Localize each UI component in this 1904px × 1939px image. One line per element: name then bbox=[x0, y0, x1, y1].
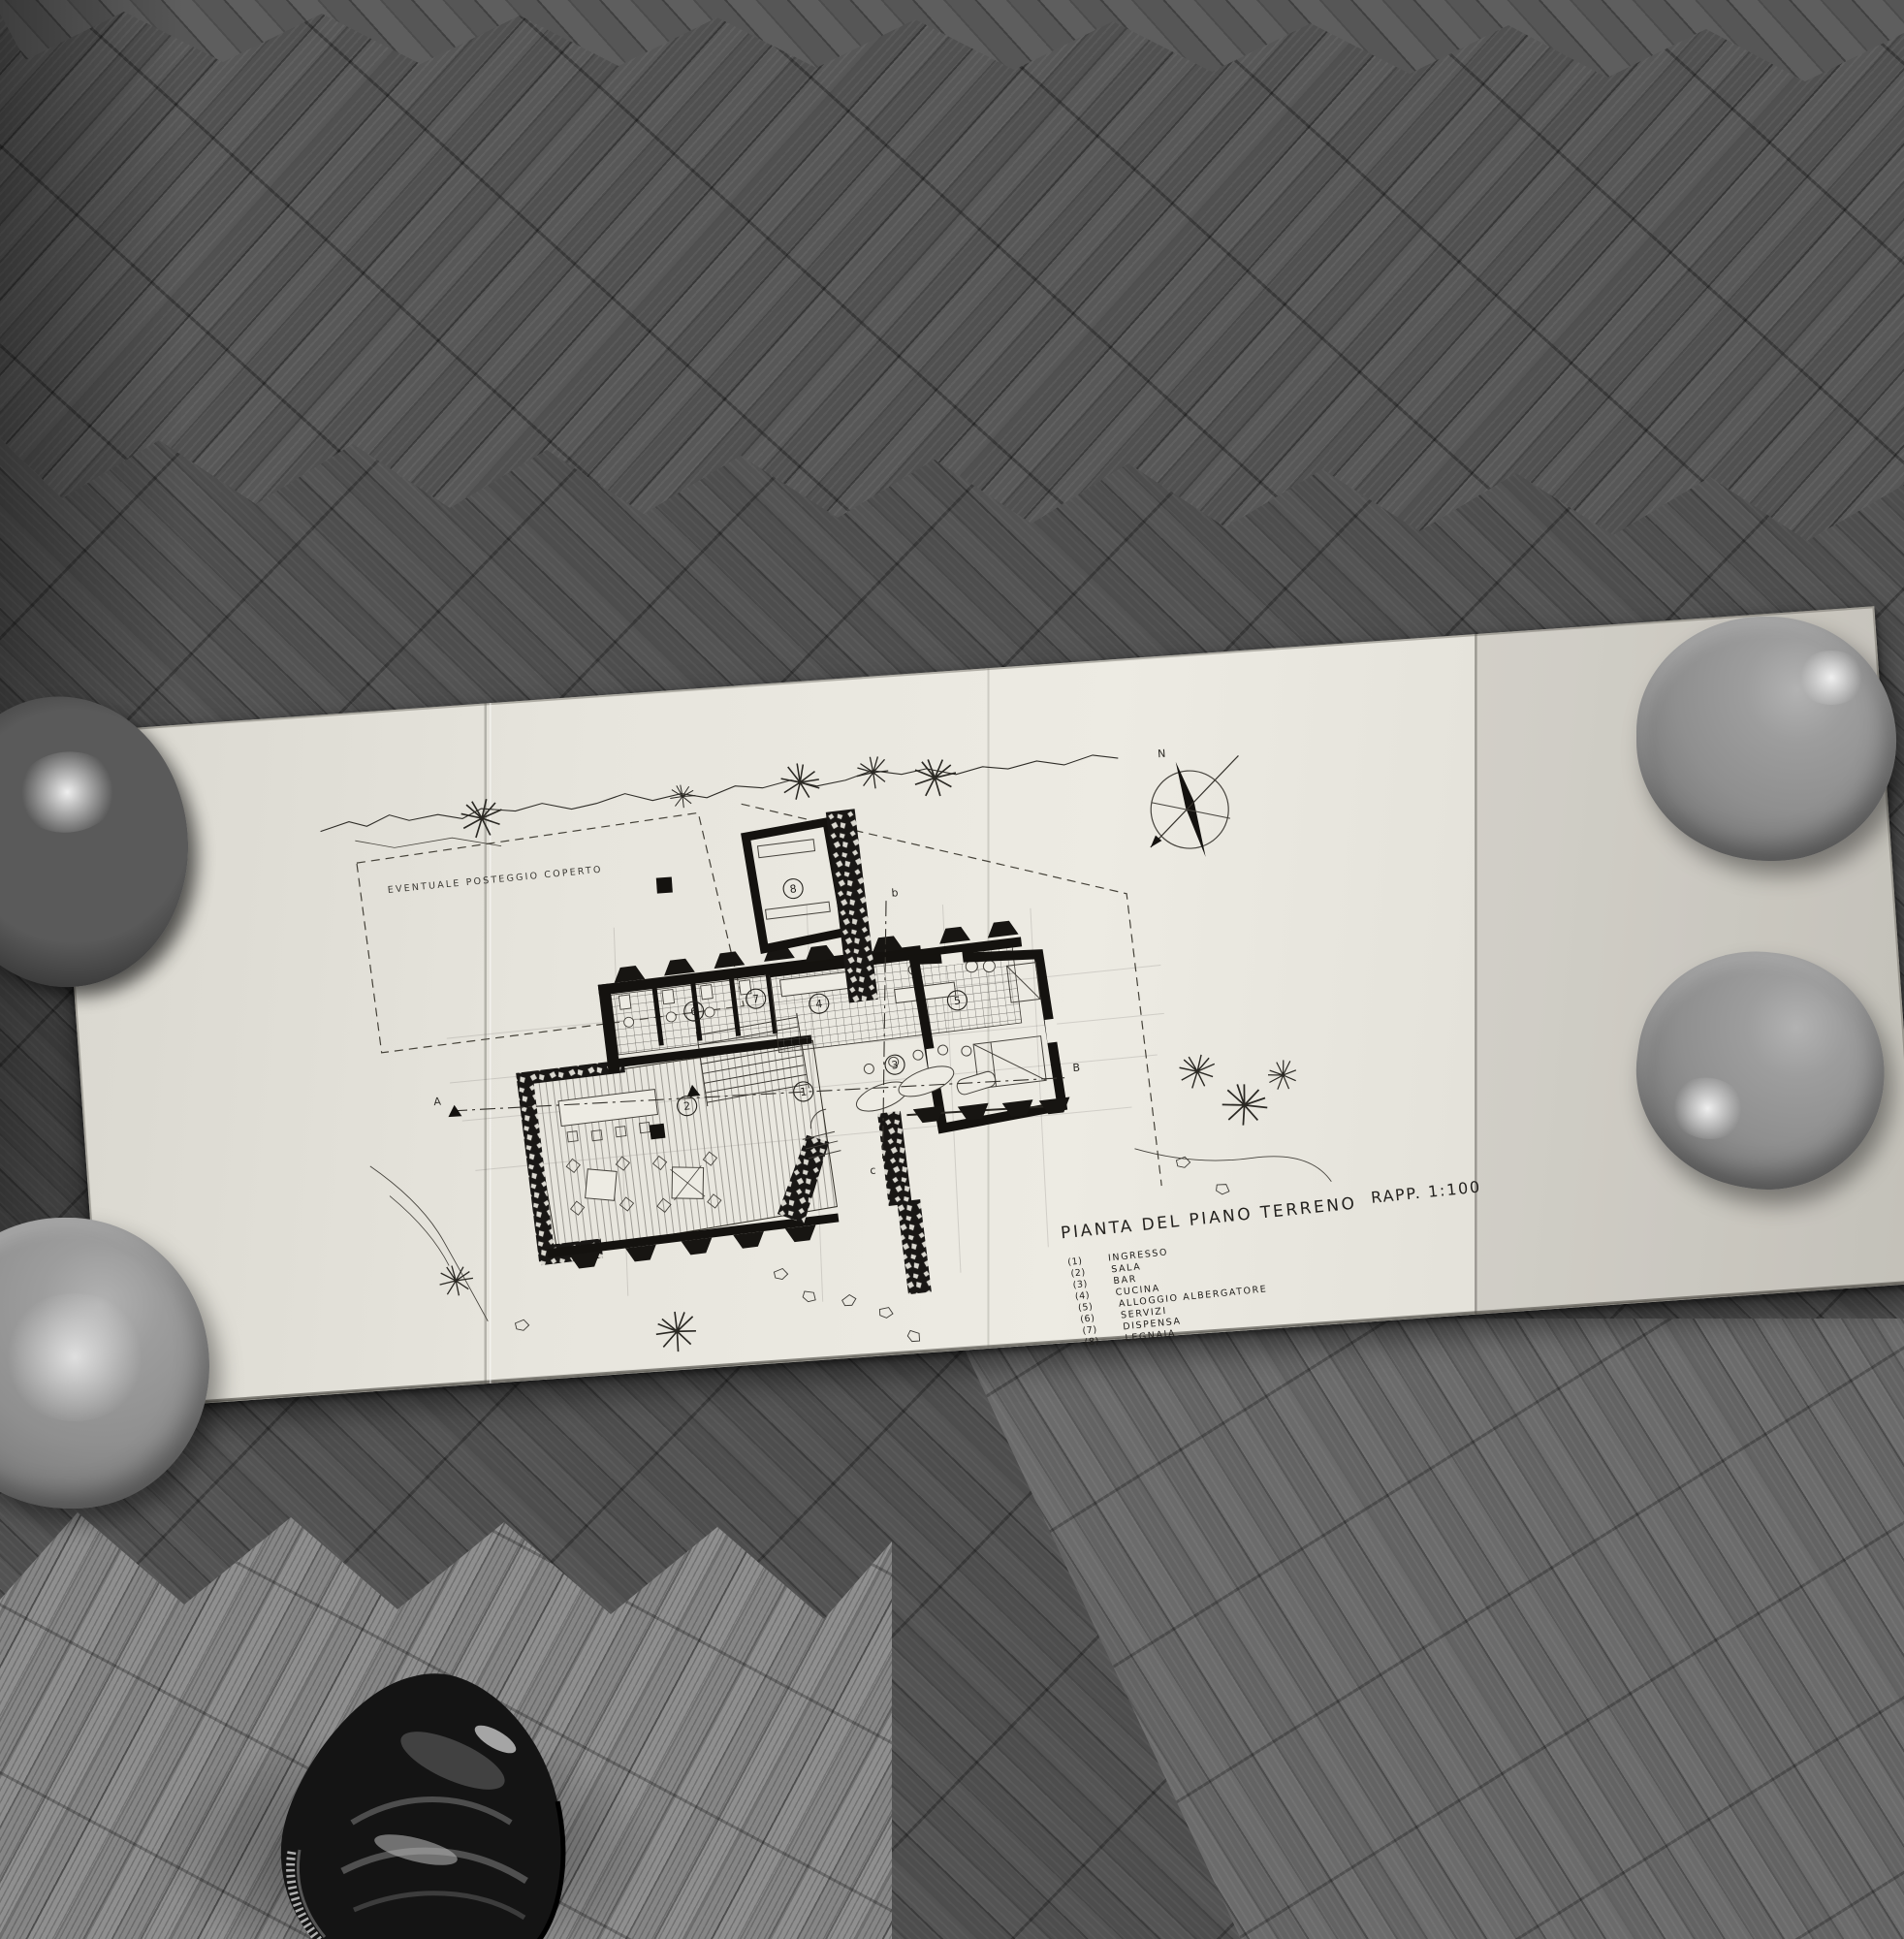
plan-scale: RAPP. 1:100 bbox=[1370, 1177, 1482, 1206]
floor-plan-drawing: EVENTUALE POSTEGGIO COPERTO bbox=[56, 606, 1904, 1410]
annotation-posteggio: EVENTUALE POSTEGGIO COPERTO bbox=[387, 865, 603, 896]
bowl-highlight bbox=[1797, 651, 1865, 704]
plan-title: PIANTA DEL PIANO TERRENO bbox=[1060, 1193, 1357, 1243]
tree-icon bbox=[912, 757, 957, 799]
right-vegetation bbox=[1128, 1046, 1332, 1202]
tree-icon bbox=[460, 798, 504, 839]
legend-num: (8) bbox=[1084, 1336, 1099, 1348]
legend-num: (1) bbox=[1067, 1256, 1083, 1267]
section-label-c: c bbox=[870, 1164, 876, 1177]
site-pillar bbox=[656, 876, 673, 893]
section-label-b: b bbox=[891, 886, 899, 899]
legend-num: (6) bbox=[1080, 1313, 1095, 1324]
legend-num: (4) bbox=[1074, 1290, 1090, 1302]
bowl-highlight bbox=[12, 747, 123, 837]
ceramic-bowl-top-right bbox=[1636, 617, 1896, 861]
legend-num: (3) bbox=[1072, 1279, 1088, 1290]
landscape-sketch bbox=[319, 753, 1122, 858]
parquet-top-band bbox=[0, 0, 1904, 543]
compass-north-label: N bbox=[1158, 747, 1166, 761]
section-label-a: A bbox=[433, 1096, 442, 1109]
section-label-b-cap: B bbox=[1072, 1062, 1080, 1074]
photograph: EVENTUALE POSTEGGIO COPERTO bbox=[0, 0, 1904, 1939]
legend-num: (5) bbox=[1078, 1302, 1094, 1314]
rubble-pier-south-ext bbox=[897, 1199, 932, 1294]
bowl-highlight bbox=[1666, 1072, 1749, 1144]
drawing-sheet: EVENTUALE POSTEGGIO COPERTO bbox=[56, 606, 1904, 1410]
bowl-highlight bbox=[3, 1293, 146, 1421]
leather-shoe bbox=[208, 1646, 625, 1939]
room-label-legnaia: 8 bbox=[789, 882, 798, 896]
legend-num: (7) bbox=[1082, 1324, 1097, 1336]
legend-label: SALA bbox=[1111, 1261, 1142, 1275]
legend-num: (2) bbox=[1070, 1267, 1086, 1279]
compass-rose: N bbox=[1144, 742, 1246, 860]
shoe-toe bbox=[281, 1673, 563, 1939]
tree-icon bbox=[668, 782, 698, 811]
